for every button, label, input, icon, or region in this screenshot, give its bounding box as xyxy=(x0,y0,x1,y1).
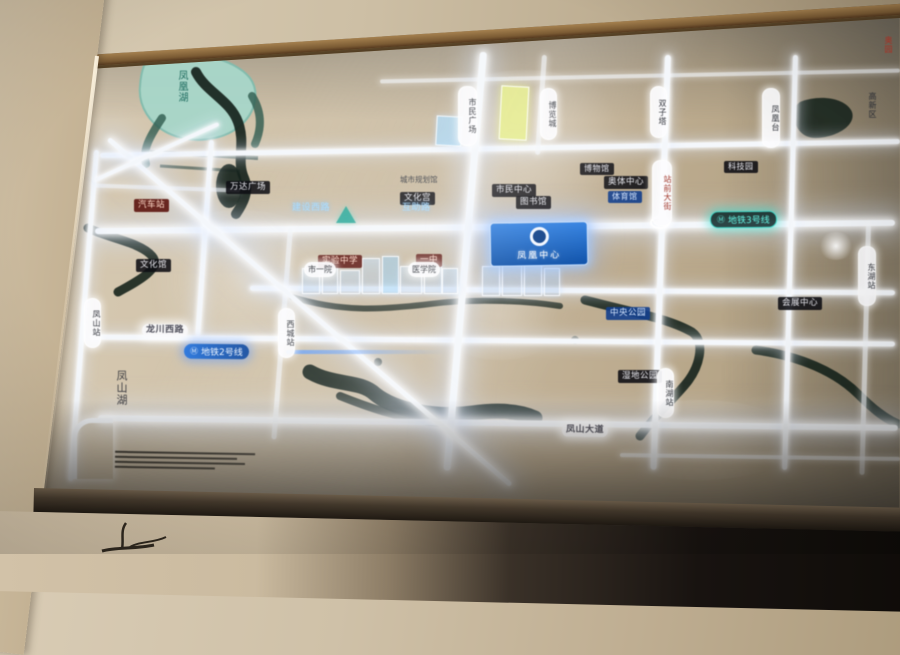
photo-of-backlit-map-display: { "map": { "project_badge": { "name": "凤… xyxy=(0,0,900,554)
station-glow-blob xyxy=(818,232,854,260)
plot-highlight-yellow xyxy=(499,85,530,140)
lake-label: 凤凰湖 xyxy=(176,70,186,103)
poi-badge: 万达广场 xyxy=(226,181,270,194)
metro-icon: Ⓜ xyxy=(717,214,725,225)
road-name-label: 互助路 xyxy=(398,202,435,215)
station-pill: 西城站 xyxy=(278,308,295,358)
building xyxy=(482,266,500,296)
metro-line-2-text: 地铁2号线 xyxy=(201,345,243,358)
metro-line-3-label: Ⓜ 地铁3号线 xyxy=(710,211,777,229)
poi-badge: 汽车站 xyxy=(134,199,169,212)
poi-badge-small: 城市规划馆 xyxy=(396,174,442,185)
building xyxy=(544,268,560,296)
poi-badge: 体育馆 xyxy=(608,191,642,203)
poi-badge: 市民中心 xyxy=(492,184,536,197)
road-name-label: 建设西路 xyxy=(288,202,334,215)
building xyxy=(340,270,360,294)
landmark-triangle-icon xyxy=(336,206,356,223)
station-pill: 东湖站 xyxy=(858,246,876,306)
building-highlight xyxy=(382,256,399,294)
station-pill-horizontal: 医学院 xyxy=(408,262,440,277)
poi-badge: 博物馆 xyxy=(580,163,614,175)
district-label: 高新区 xyxy=(868,92,876,119)
corner-red-label: 奥园 xyxy=(884,36,892,54)
road-name-pill-vertical: 站前大街 xyxy=(652,160,672,226)
building xyxy=(524,262,542,296)
poi-badge: 科技园 xyxy=(724,161,758,173)
wall-plant-sketch xyxy=(96,521,180,555)
river xyxy=(292,297,560,308)
metro-line-3-text: 地铁3号线 xyxy=(728,213,770,226)
station-pill: 博览城 xyxy=(540,88,557,140)
project-name: 凤凰中心 xyxy=(517,248,561,262)
station-pill: 双子塔 xyxy=(650,86,667,138)
poi-badge: 文化馆 xyxy=(136,259,171,272)
road-name-label: 龙川西路 xyxy=(142,324,188,338)
station-pill: 市民广场 xyxy=(458,86,477,146)
backlit-map-panel: 凤凰湖 凤山湖 Ⓜ 地铁2号线 Ⓜ 地铁3号线 凤凰中心 万达广场 博物馆 市民… xyxy=(0,0,900,554)
station-pill: 凤山站 xyxy=(84,298,101,348)
project-logo-icon xyxy=(529,227,548,246)
poi-badge: 图书馆 xyxy=(516,196,551,209)
park-blob-top-right xyxy=(794,98,853,138)
poi-badge: 奥体中心 xyxy=(604,176,648,189)
station-pill: 凤凰台 xyxy=(762,88,780,148)
poi-badge: 中央公园 xyxy=(606,307,650,320)
metro-icon: Ⓜ xyxy=(190,346,198,357)
building xyxy=(362,258,380,294)
project-location-badge: 凤凰中心 xyxy=(490,221,589,267)
building xyxy=(442,268,458,294)
lake-wing xyxy=(252,96,260,144)
station-pill-horizontal: 市一院 xyxy=(304,262,336,277)
poi-badge: 会展中心 xyxy=(778,297,822,310)
poi-badge: 湿地公园 xyxy=(618,370,662,383)
metro-line-2-label: Ⓜ 地铁2号线 xyxy=(184,344,249,360)
metro-line-2-line xyxy=(286,350,446,354)
